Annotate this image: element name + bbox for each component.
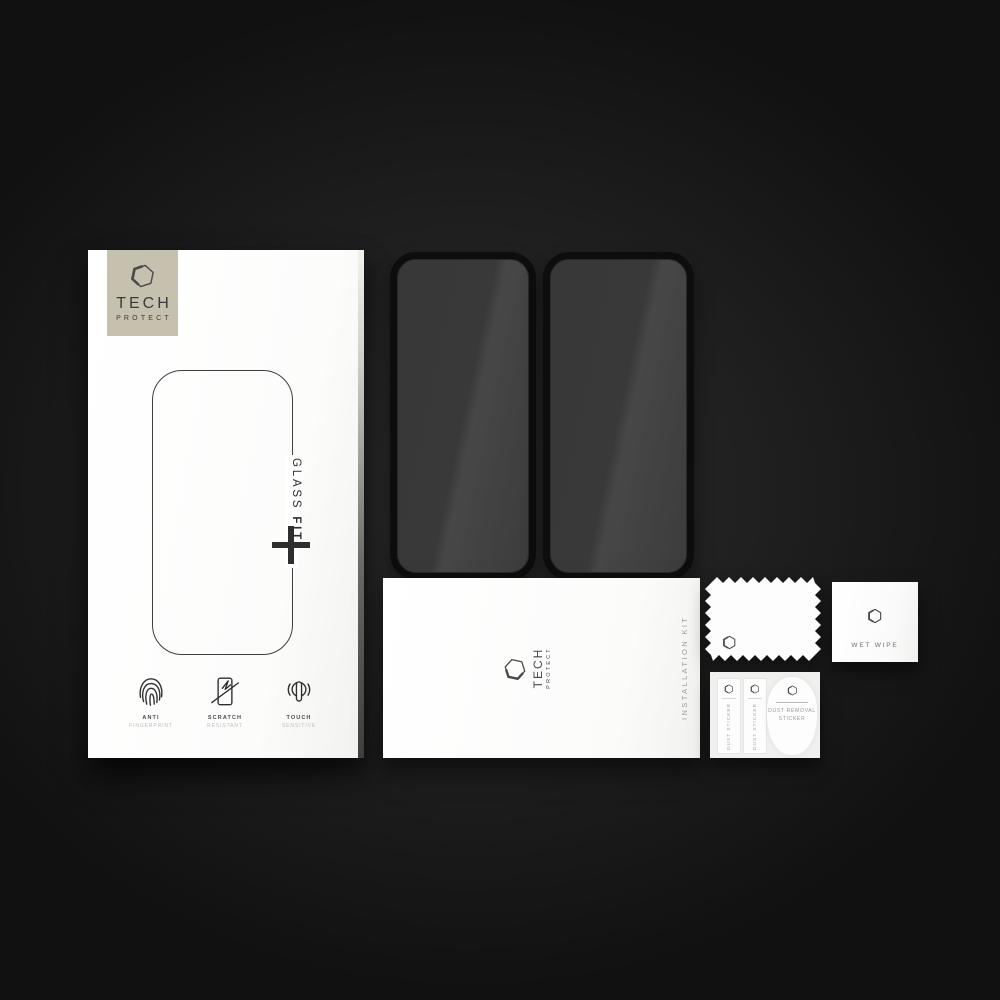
dust-removal-line1: DUST REMOVAL (768, 708, 816, 716)
dust-sticker-label: DUST STICKER (753, 699, 758, 753)
hexagon-logo-icon (722, 635, 737, 650)
box-side-edge (358, 250, 364, 758)
feature-title: ANTI (142, 715, 159, 721)
feature-subtitle: SENSITIVE (282, 723, 316, 729)
divider (776, 702, 808, 703)
hexagon-logo-icon (750, 684, 760, 694)
dust-removal-line2: STICKER (768, 716, 816, 724)
kit-brand-logo: TECH PROTECT (477, 619, 577, 719)
tempered-glass-2 (543, 252, 694, 580)
dust-sticker-strip: DUST STICKER (743, 678, 767, 754)
hexagon-logo-icon (867, 608, 883, 624)
dust-sticker-card: DUST STICKER DUST STICKER DUST REMOVAL S… (710, 672, 820, 758)
hexagon-logo-icon (724, 684, 734, 694)
hexagon-logo-icon (127, 261, 158, 292)
phone-outline-drawing (152, 370, 293, 655)
brand-subname: PROTECT (116, 315, 172, 322)
feature-title: SCRATCH (208, 715, 242, 721)
brand-name: TECH (116, 295, 172, 313)
scratch-screen-icon (208, 674, 242, 710)
feature-title: TOUCH (287, 715, 312, 721)
hexagon-logo-icon (500, 655, 528, 683)
brand-logo-square: TECH PROTECT (107, 250, 178, 336)
feature-subtitle: FINGERPRINT (129, 723, 173, 729)
dust-sticker-label: DUST STICKER (727, 699, 732, 753)
dust-removal-sticker: DUST REMOVAL STICKER (767, 677, 817, 755)
wet-wipe-label: WET WIPE (832, 642, 918, 649)
brand-name: TECH (531, 648, 545, 689)
feature-touch-sensitive: TOUCH SENSITIVE (268, 674, 330, 729)
dust-removal-sticker-label: DUST REMOVAL STICKER (768, 708, 816, 724)
fingerprint-icon (134, 674, 168, 710)
hexagon-logo-icon (787, 685, 798, 696)
feature-row: ANTI FINGERPRINT SCRATCH RESISTANT (120, 674, 330, 729)
feature-scratch-resistant: SCRATCH RESISTANT (194, 674, 256, 729)
brand-subname: PROTECT (546, 647, 552, 689)
plus-icon (271, 525, 311, 565)
wet-wipe-sachet: WET WIPE (832, 582, 918, 662)
tempered-glass-1 (390, 252, 536, 580)
product-photo: TECH PROTECT GLASS FIT ANTI FINGERPRINT (0, 0, 1000, 1000)
touch-point-icon (282, 674, 316, 710)
feature-subtitle: RESISTANT (207, 723, 243, 729)
dust-sticker-strip: DUST STICKER (717, 678, 741, 754)
installation-kit-box: TECH PROTECT INSTALLATION KIT (383, 578, 700, 758)
installation-kit-label: INSTALLATION KIT (680, 618, 696, 720)
retail-box: TECH PROTECT GLASS FIT ANTI FINGERPRINT (88, 250, 358, 758)
feature-anti-fingerprint: ANTI FINGERPRINT (120, 674, 182, 729)
microfiber-cloth (705, 577, 821, 661)
product-name-word1: GLASS (290, 458, 302, 510)
